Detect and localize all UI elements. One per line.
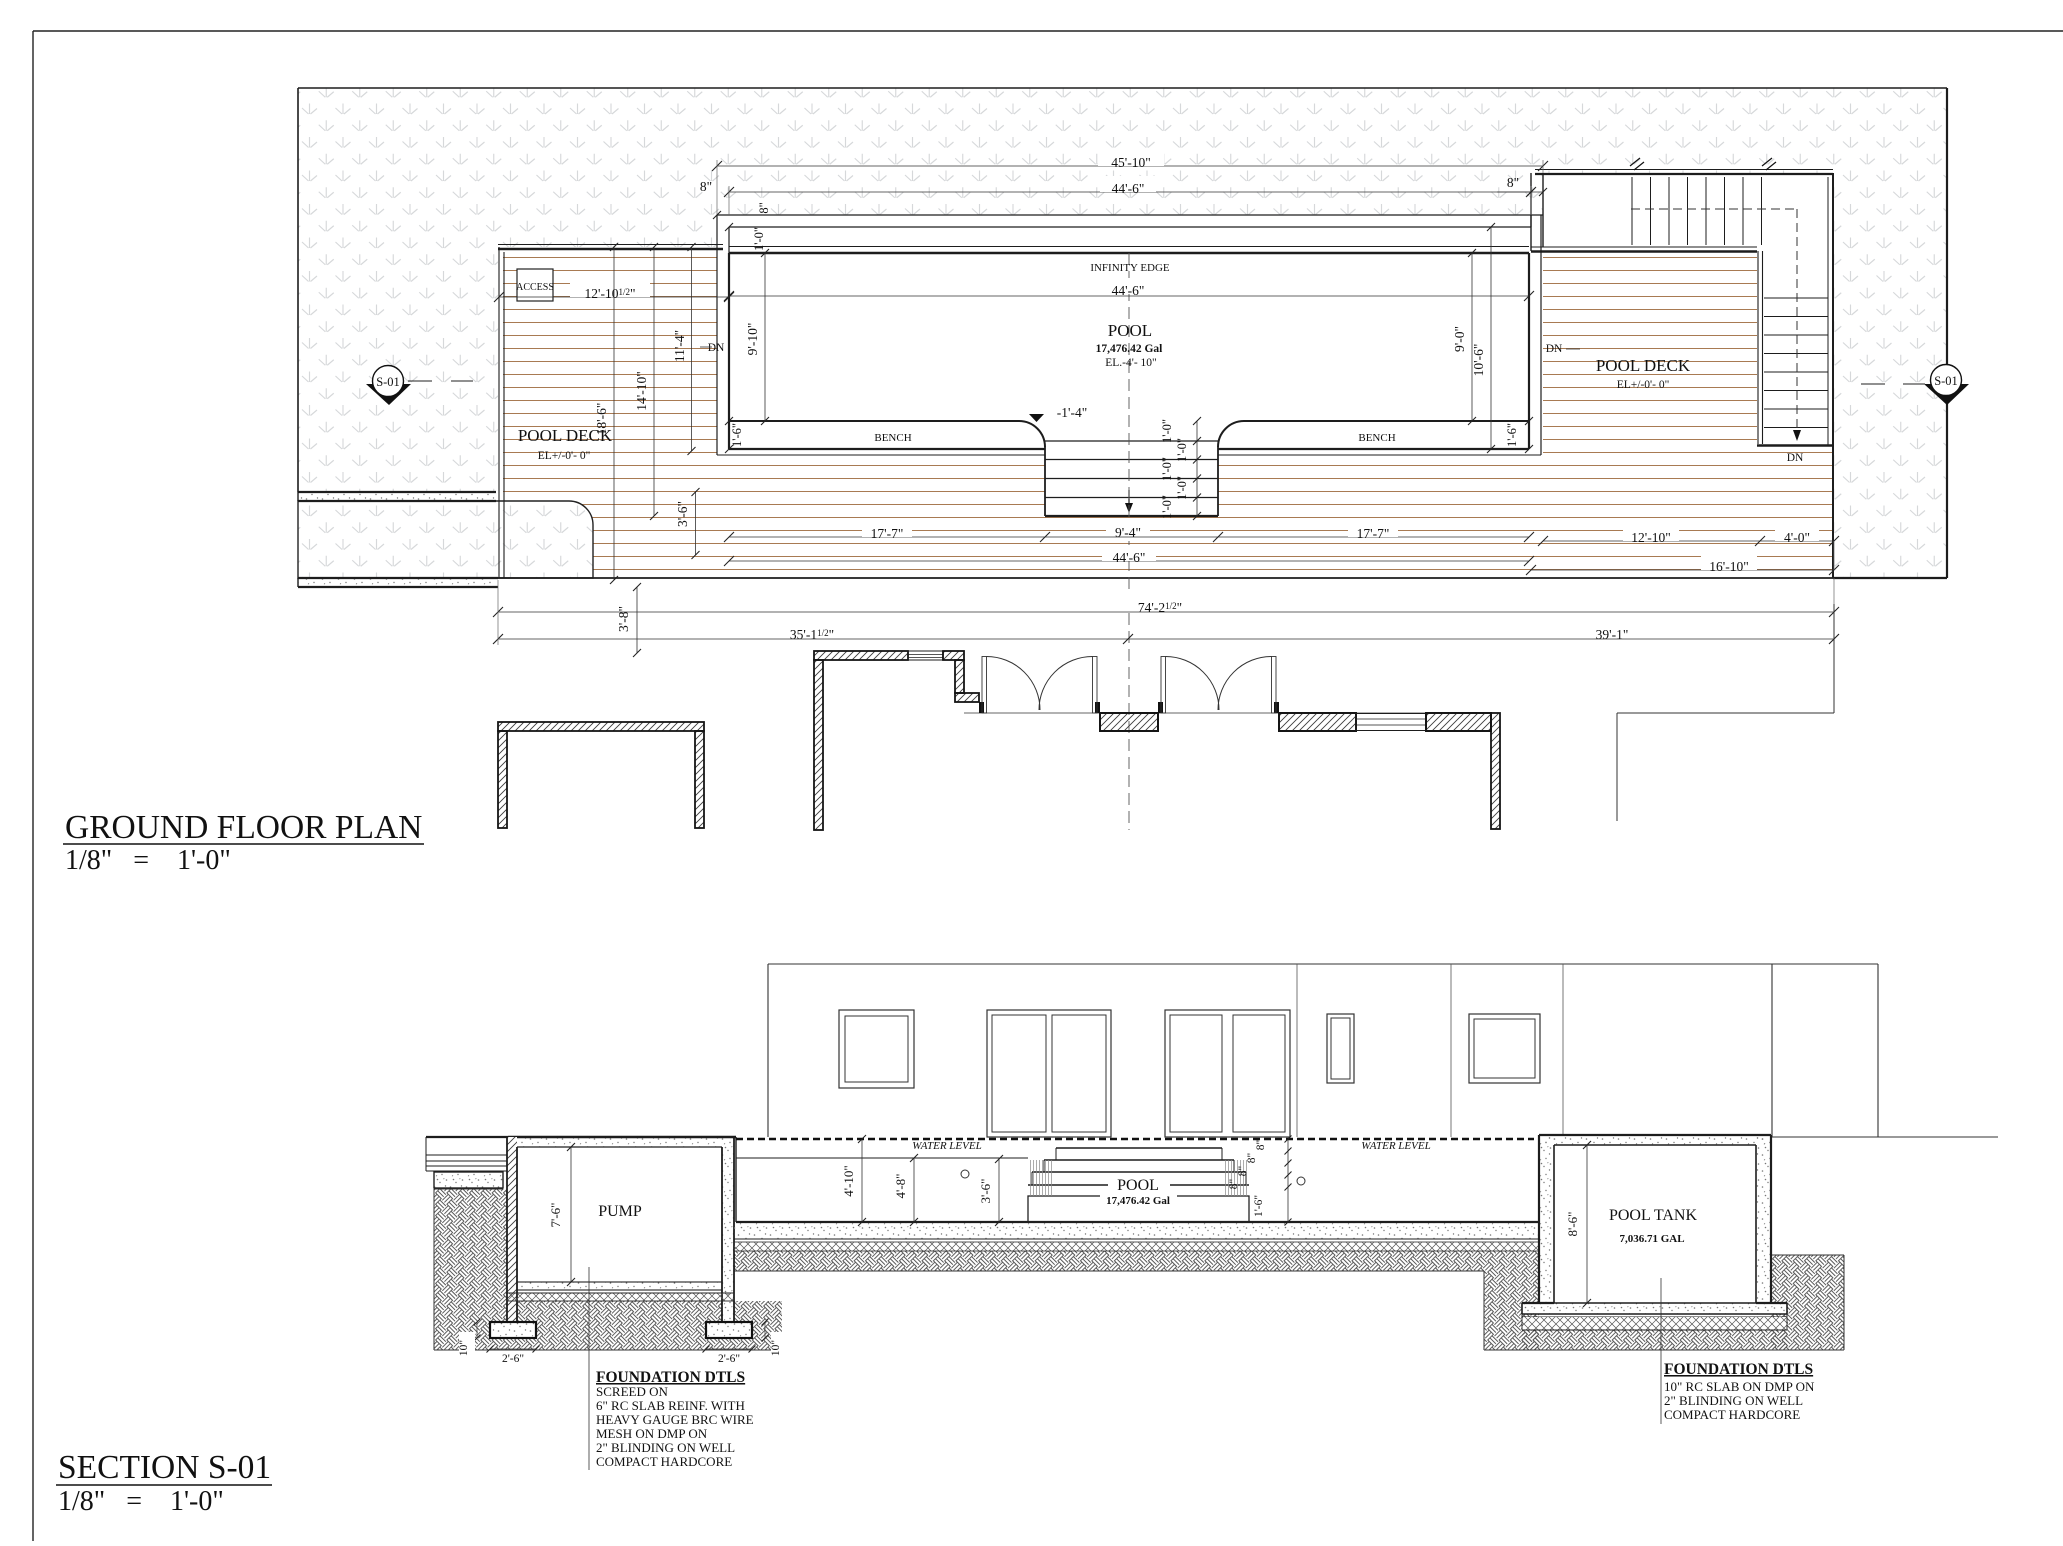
svg-text:1'-0": 1'-0" [1175, 476, 1189, 500]
svg-text:10" RC SLAB ON DMP ON: 10" RC SLAB ON DMP ON [1664, 1379, 1815, 1394]
svg-text:2" BLINDING ON WELL: 2" BLINDING ON WELL [1664, 1393, 1803, 1408]
svg-text:POOL DECK: POOL DECK [1596, 356, 1691, 375]
svg-text:S-01: S-01 [1934, 374, 1958, 388]
svg-text:4'-10": 4'-10" [841, 1165, 856, 1196]
svg-text:POOL: POOL [1117, 1177, 1159, 1194]
svg-text:1'-6": 1'-6" [1505, 423, 1519, 447]
svg-text:8": 8" [1507, 175, 1519, 190]
svg-text:1'-0": 1'-0" [1160, 419, 1174, 443]
svg-text:4'-8": 4'-8" [893, 1174, 908, 1199]
svg-text:44'-6": 44'-6" [1112, 283, 1145, 298]
svg-text:10": 10" [458, 1340, 470, 1356]
svg-text:45'-10": 45'-10" [1111, 155, 1150, 170]
svg-text:7,036.71 GAL: 7,036.71 GAL [1619, 1233, 1684, 1245]
svg-text:17,476.42 Gal: 17,476.42 Gal [1096, 343, 1163, 355]
svg-text:2'-6": 2'-6" [502, 1353, 524, 1365]
svg-text:WATER LEVEL: WATER LEVEL [1361, 1140, 1430, 1152]
svg-text:WATER LEVEL: WATER LEVEL [912, 1140, 981, 1152]
svg-text:3'-6": 3'-6" [675, 501, 690, 527]
svg-text:10": 10" [770, 1340, 782, 1356]
svg-text:SCREED ON: SCREED ON [596, 1384, 668, 1399]
svg-text:12'-10": 12'-10" [1631, 530, 1670, 545]
svg-text:INFINITY EDGE: INFINITY EDGE [1090, 262, 1170, 274]
svg-text:HEAVY GAUGE BRC WIRE: HEAVY GAUGE BRC WIRE [596, 1412, 754, 1427]
svg-text:COMPACT HARDCORE: COMPACT HARDCORE [596, 1454, 732, 1469]
svg-text:1'-6": 1'-6" [1253, 1195, 1265, 1217]
svg-text:1/8" = 1'-0": 1/8" = 1'-0" [58, 1486, 224, 1517]
svg-text:MESH ON DMP ON: MESH ON DMP ON [596, 1426, 708, 1441]
svg-text:8": 8" [1255, 1140, 1267, 1150]
svg-text:S-01: S-01 [376, 375, 400, 389]
svg-text:8": 8" [1228, 1179, 1240, 1189]
svg-text:COMPACT HARDCORE: COMPACT HARDCORE [1664, 1407, 1800, 1422]
svg-text:EL.-4'- 10": EL.-4'- 10" [1105, 357, 1156, 369]
svg-text:9'-0": 9'-0" [1452, 326, 1467, 352]
svg-text:39'-1": 39'-1" [1596, 627, 1629, 642]
svg-text:POOL: POOL [1108, 321, 1152, 340]
svg-text:6" RC SLAB REINF. WITH: 6" RC SLAB REINF. WITH [596, 1398, 745, 1413]
svg-text:9'-10": 9'-10" [745, 323, 760, 356]
svg-text:EL+/-0'- 0": EL+/-0'- 0" [538, 450, 591, 462]
svg-text:4'-0": 4'-0" [1784, 530, 1810, 545]
svg-text:1'-6": 1'-6" [730, 423, 744, 447]
svg-text:1/8" = 1'-0": 1/8" = 1'-0" [65, 845, 231, 876]
svg-text:DN: DN [708, 342, 725, 354]
svg-text:11'-4": 11'-4" [672, 330, 687, 362]
svg-text:ACCESS: ACCESS [516, 282, 554, 293]
svg-text:DN: DN [1546, 343, 1563, 355]
svg-text:1'-0": 1'-0" [1175, 438, 1189, 462]
svg-text:SECTION S-01: SECTION S-01 [58, 1449, 271, 1486]
svg-text:1'-0": 1'-0" [1160, 495, 1174, 519]
svg-text:2'-6": 2'-6" [718, 1353, 740, 1365]
svg-text:PUMP: PUMP [598, 1203, 642, 1220]
svg-text:-1'-4": -1'-4" [1057, 405, 1087, 420]
svg-text:8": 8" [757, 202, 771, 213]
svg-text:7'-6": 7'-6" [548, 1203, 563, 1228]
svg-text:DN: DN [1787, 452, 1804, 464]
svg-text:GROUND FLOOR PLAN: GROUND FLOOR PLAN [65, 809, 422, 846]
svg-text:3'-8": 3'-8" [616, 606, 631, 632]
svg-text:44'-6": 44'-6" [1112, 181, 1145, 196]
svg-text:3'-6": 3'-6" [978, 1179, 993, 1204]
svg-text:FOUNDATION DTLS: FOUNDATION DTLS [1664, 1361, 1813, 1378]
svg-text:1'-0": 1'-0" [1160, 457, 1174, 481]
svg-text:16'-10": 16'-10" [1709, 559, 1748, 574]
svg-text:8'-6": 8'-6" [1565, 1212, 1580, 1237]
svg-text:POOL DECK: POOL DECK [518, 426, 613, 445]
svg-text:14'-10": 14'-10" [634, 371, 649, 410]
svg-text:8": 8" [700, 179, 712, 194]
svg-text:17'-7": 17'-7" [1357, 526, 1390, 541]
svg-text:8": 8" [1246, 1153, 1258, 1163]
svg-text:EL+/-0'- 0": EL+/-0'- 0" [1617, 379, 1670, 391]
svg-text:9'-4": 9'-4" [1115, 525, 1141, 540]
svg-text:44'-6": 44'-6" [1113, 550, 1146, 565]
svg-text:POOL TANK: POOL TANK [1609, 1207, 1698, 1224]
svg-text:1'-0": 1'-0" [752, 227, 766, 251]
svg-text:2" BLINDING ON WELL: 2" BLINDING ON WELL [596, 1440, 735, 1455]
svg-text:BENCH: BENCH [1358, 432, 1395, 444]
svg-text:8": 8" [1237, 1166, 1249, 1176]
svg-text:17'-7": 17'-7" [871, 526, 904, 541]
svg-text:17,476.42 Gal: 17,476.42 Gal [1106, 1195, 1170, 1207]
svg-text:10'-6": 10'-6" [1471, 344, 1486, 377]
svg-text:BENCH: BENCH [874, 432, 911, 444]
